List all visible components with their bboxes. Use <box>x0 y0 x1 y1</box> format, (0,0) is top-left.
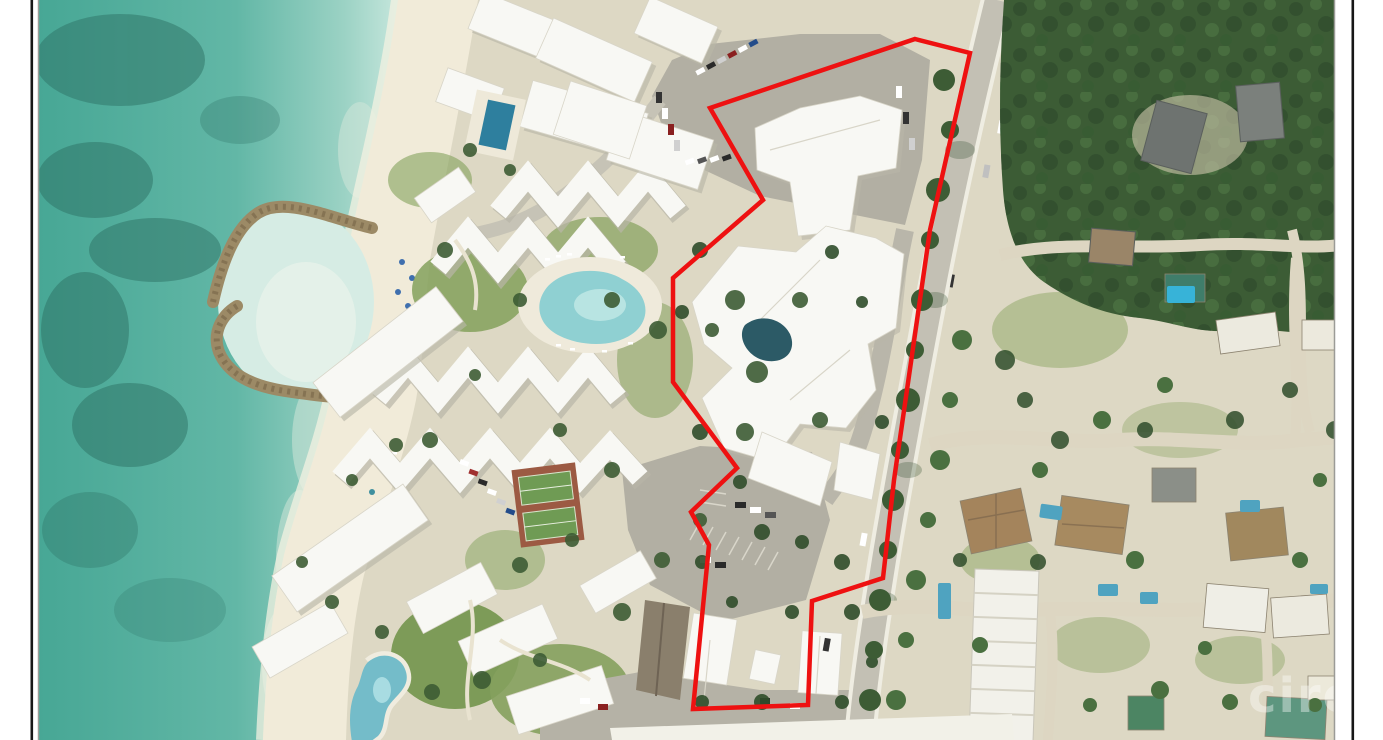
aerial-map: cireba <box>0 0 1383 740</box>
watermark-text: cireba <box>1248 668 1383 724</box>
document-page: cireba <box>0 0 1383 740</box>
page-frame-left <box>31 0 34 740</box>
page-frame-right <box>1352 0 1355 740</box>
aerial-photo: cireba <box>35 0 1383 740</box>
